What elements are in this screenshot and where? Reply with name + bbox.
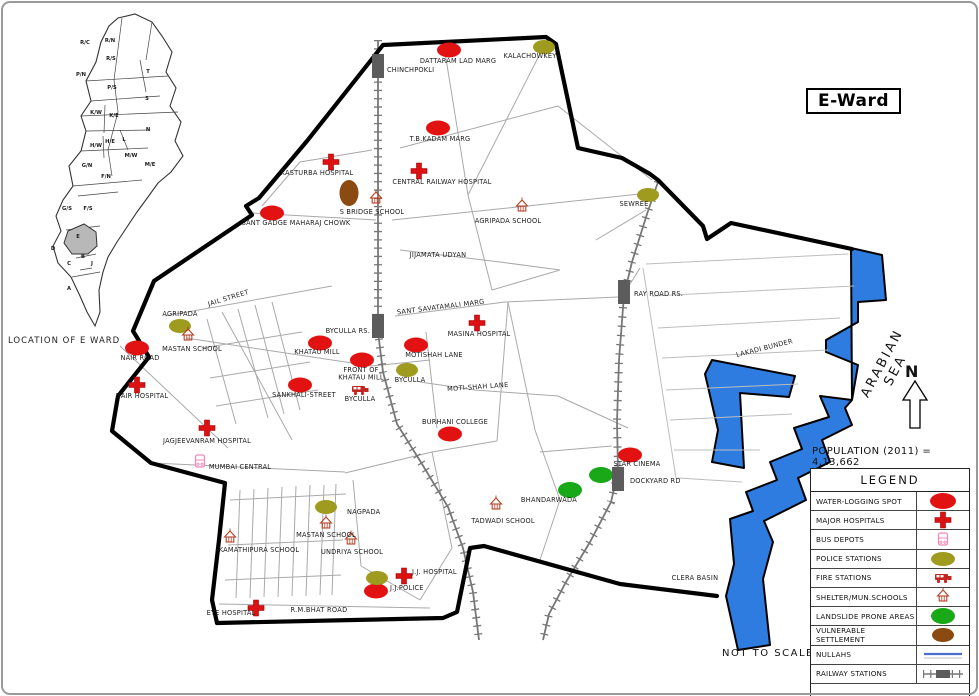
marker-police	[396, 363, 418, 377]
scale-note: NOT TO SCALE	[722, 648, 814, 659]
e-ward-disaster-map-page: DATTARAM LAD MARGT.B.KADAM MARGSANT GADG…	[0, 0, 979, 696]
ward-label-f-n: F/N	[101, 174, 111, 180]
ward-title-box: E-Ward	[806, 88, 901, 114]
road-label: CLERA BASIN	[672, 574, 719, 582]
legend-row: RAILWAY STATIONS	[811, 665, 969, 684]
feature-label: AGRIPADA SCHOOL	[475, 217, 542, 225]
ward-label-e: E	[76, 234, 80, 240]
feature-label: NAGPADA	[347, 508, 381, 516]
marker-water	[426, 121, 450, 136]
legend-symbol-nullah	[916, 646, 969, 664]
inset-caption: LOCATION OF E WARD	[8, 336, 120, 346]
feature-label: STAR CINEMA	[614, 460, 661, 468]
ward-label-r-c: R/C	[80, 40, 90, 46]
feature-label: MASINA HOSPITAL	[448, 330, 511, 338]
legend-row: LANDSLIDE PRONE AREAS	[811, 607, 969, 626]
marker-shelter	[225, 529, 236, 543]
feature-label: T.B.KADAM MARG	[409, 135, 471, 143]
legend-row-label: RAILWAY STATIONS	[811, 669, 916, 678]
legend-symbol-fire	[916, 569, 969, 587]
road-label: SANT SAVATAMALI MARG	[396, 298, 485, 317]
marker-shelter	[517, 198, 528, 212]
location-inset-map: R/NR/CR/SP/NTP/SSK/WK/ENH/WH/ELM/WM/EG/N…	[0, 0, 220, 340]
ward-label-b: B	[81, 254, 85, 260]
feature-label: RAY ROAD RS.	[634, 290, 683, 298]
legend-empty-row	[811, 684, 969, 696]
feature-label: BURHANI COLLEGE	[422, 418, 488, 426]
legend-row: POLICE STATIONS	[811, 550, 969, 569]
ward-label-a: A	[67, 286, 71, 292]
marker-water	[364, 584, 388, 599]
marker-land	[589, 467, 613, 483]
legend-row-label: WATER-LOGGING SPOT	[811, 497, 916, 506]
ward-label-s: S	[145, 96, 149, 102]
marker-water	[437, 43, 461, 58]
feature-label: DATTARAM LAD MARG	[420, 57, 496, 65]
marker-hosp	[396, 568, 412, 584]
ward-label-f-s: F/S	[83, 206, 92, 212]
mumbai-outline	[53, 14, 183, 326]
road-label: JIJAMATA UDYAN	[409, 251, 467, 259]
feature-label: CENTRAL RAILWAY HOSPITAL	[392, 178, 491, 186]
marker-rail	[612, 467, 624, 491]
legend-row: VULNERABLE SETTLEMENT	[811, 626, 969, 645]
legend-symbol-bus	[916, 530, 969, 548]
ward-label-d: D	[51, 246, 56, 252]
feature-label: BYCULLA RS.	[326, 327, 370, 335]
legend-symbol-hosp	[916, 511, 969, 529]
marker-shelter	[491, 496, 502, 510]
feature-label: FRONT OFKHATAU MILL	[338, 366, 384, 382]
legend-symbol-land	[916, 607, 969, 625]
feature-label: S BRIDGE SCHOOL	[340, 208, 405, 216]
feature-label: KALACHOWKEY	[504, 52, 558, 60]
ward-label-j: J	[90, 261, 93, 267]
marker-shelter	[371, 190, 382, 204]
ward-label-m-e: M/E	[145, 162, 156, 168]
north-arrow-icon	[903, 381, 927, 428]
ward-label-n: N	[146, 127, 150, 133]
road-label: LAKADI BUNDER	[735, 337, 794, 359]
legend-row: BUS DEPOTS	[811, 530, 969, 549]
feature-label: BYCULLA	[395, 376, 426, 384]
feature-label: J.J.POLICE	[389, 584, 424, 592]
feature-label: KAMATHIPURA SCHOOL	[219, 546, 300, 554]
legend-row: NULLAHS	[811, 646, 969, 665]
feature-label: SANT GADGE MAHARAJ CHOWK	[242, 219, 351, 227]
legend-title: LEGEND	[811, 469, 969, 492]
feature-label: MASTAN SCHOOL	[296, 531, 356, 539]
feature-label: J.J. HOSPITAL	[411, 568, 457, 576]
ward-label-g-s: G/S	[62, 206, 72, 212]
marker-vuln	[340, 180, 359, 206]
ward-label-p-n: P/N	[76, 72, 86, 78]
marker-bus	[196, 455, 205, 467]
population-text: POPULATION (2011) = 4,13,662	[812, 446, 979, 468]
legend-row: FIRE STATIONS	[811, 569, 969, 588]
marker-police	[366, 571, 388, 585]
ward-label-k-w: K/W	[90, 110, 102, 116]
feature-label: UNDRIYA SCHOOL	[321, 548, 383, 556]
feature-label: MOTISHAH LANE	[405, 351, 463, 359]
marker-water	[438, 427, 462, 442]
legend-symbol-vuln	[916, 626, 969, 644]
ward-label-t: T	[146, 69, 150, 75]
marker-rail	[372, 54, 384, 78]
feature-label: NAIR HOSPITAL	[116, 392, 169, 400]
marker-hosp	[411, 163, 427, 179]
road-label: R.M.BHAT ROAD	[291, 606, 348, 614]
feature-label: JAGJEEVANRAM HOSPITAL	[162, 437, 251, 445]
legend: LEGEND WATER-LOGGING SPOTMAJOR HOSPITALS…	[810, 468, 970, 696]
ward-label-c: C	[67, 261, 71, 267]
legend-row-label: VULNERABLE SETTLEMENT	[811, 626, 916, 644]
marker-rail	[618, 280, 630, 304]
north-label: N	[905, 362, 918, 381]
feature-label: KASTURBA HOSPITAL	[281, 169, 354, 177]
feature-label: TADWADI SCHOOL	[470, 517, 535, 525]
feature-label: CHINCHPOKLI	[387, 66, 434, 74]
ward-label-g-n: G/N	[82, 163, 93, 169]
legend-row-label: SHELTER/MUN.SCHOOLS	[811, 593, 916, 602]
legend-symbol-water	[916, 492, 969, 510]
marker-police	[315, 500, 337, 514]
ward-label-h-e: H/E	[105, 139, 115, 145]
legend-row-label: FIRE STATIONS	[811, 573, 916, 582]
legend-row: WATER-LOGGING SPOT	[811, 492, 969, 511]
legend-row-label: POLICE STATIONS	[811, 554, 916, 563]
feature-label: BYCULLA	[345, 395, 376, 403]
marker-fire	[352, 386, 369, 395]
feature-label: MASTAN SCHOOL	[162, 345, 222, 353]
ward-label-p-s: P/S	[107, 85, 117, 91]
ward-label-r-s: R/S	[106, 56, 116, 62]
ward-label-m-w: M/W	[125, 153, 138, 159]
road-label: BHANDARWADA	[521, 496, 577, 504]
ward-label-h-w: H/W	[90, 143, 102, 149]
feature-label: NAIR ROAD	[120, 354, 159, 362]
marker-shelter	[321, 515, 332, 529]
legend-row-label: LANDSLIDE PRONE AREAS	[811, 612, 916, 621]
feature-label: DOCKYARD RD	[630, 477, 681, 485]
legend-row-label: BUS DEPOTS	[811, 535, 916, 544]
ward-label-r-n: R/N	[105, 38, 115, 44]
marker-hosp	[469, 315, 485, 331]
feature-label: EYE HOSPITAL	[207, 609, 256, 617]
marker-rail	[372, 314, 384, 338]
feature-label: MUMBAI CENTRAL	[209, 463, 271, 471]
legend-symbol-police	[916, 550, 969, 568]
legend-row-label: MAJOR HOSPITALS	[811, 516, 916, 525]
feature-label: SANKHALI-STREET	[272, 391, 336, 399]
legend-row: SHELTER/MUN.SCHOOLS	[811, 588, 969, 607]
legend-symbol-railsym	[916, 665, 969, 683]
feature-label: KHATAU MILL	[294, 348, 340, 356]
feature-label: SEWREE	[620, 200, 649, 208]
legend-row-label: NULLAHS	[811, 650, 916, 659]
legend-row: MAJOR HOSPITALS	[811, 511, 969, 530]
legend-symbol-shelter	[916, 588, 969, 606]
ward-label-k-e: K/E	[109, 113, 119, 119]
